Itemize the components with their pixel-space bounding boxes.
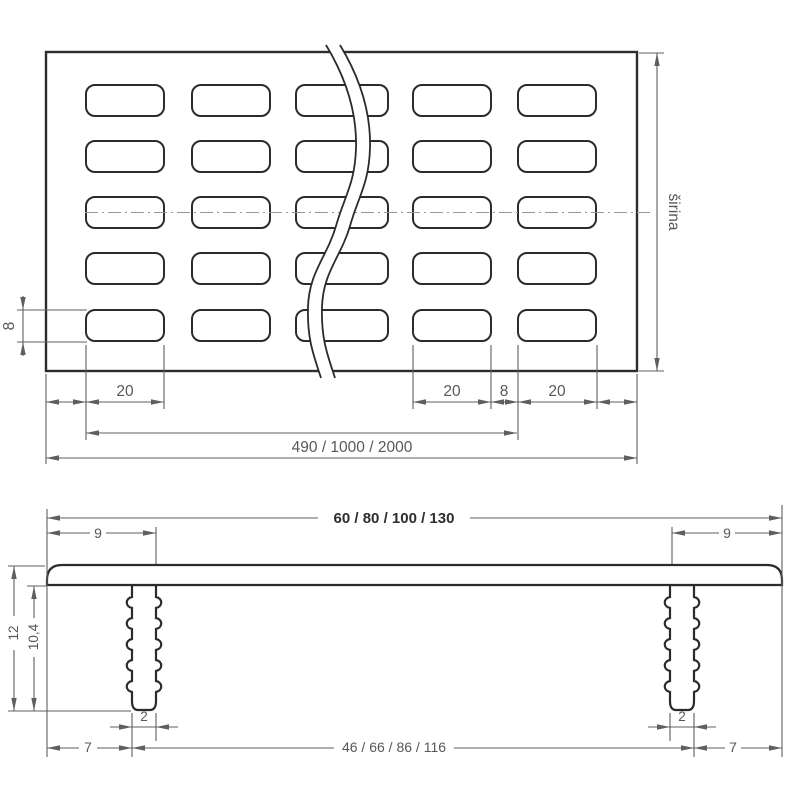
arrowhead bbox=[769, 530, 782, 535]
arrowhead bbox=[504, 430, 517, 435]
arrowhead bbox=[31, 698, 36, 711]
arrowhead bbox=[505, 399, 518, 404]
dim-hole-width-1: 20 bbox=[116, 383, 134, 400]
arrowhead bbox=[694, 724, 707, 729]
profile-legs bbox=[127, 585, 700, 710]
slot bbox=[192, 253, 270, 284]
profile-leg bbox=[127, 585, 162, 710]
arrowhead bbox=[681, 745, 694, 750]
dim-hole-width-2: 20 bbox=[443, 383, 461, 400]
arrowhead bbox=[86, 399, 99, 404]
top-view: 8 širina 20 20 8 20 490 / 1000 / 2000 bbox=[1, 45, 682, 456]
dim-width-options: 60 / 80 / 100 / 130 bbox=[334, 510, 455, 527]
technical-drawing: 8 širina 20 20 8 20 490 / 1000 / 2000 60… bbox=[0, 0, 800, 800]
arrowhead bbox=[11, 698, 16, 711]
arrowhead bbox=[478, 399, 491, 404]
dim-width-label: širina bbox=[665, 193, 682, 230]
dim-leg-width-left: 2 bbox=[140, 709, 148, 724]
slot bbox=[192, 141, 270, 172]
section-dimensions: 60 / 80 / 100 / 130 9 9 12 10,4 2 2 7 7 … bbox=[6, 510, 737, 755]
slot bbox=[518, 141, 596, 172]
slot bbox=[518, 310, 596, 341]
slot bbox=[86, 253, 164, 284]
dim-leg-span-options: 46 / 66 / 86 / 116 bbox=[342, 739, 446, 755]
slot bbox=[413, 310, 491, 341]
arrowhead bbox=[151, 399, 164, 404]
arrowhead bbox=[413, 399, 426, 404]
slot bbox=[86, 85, 164, 116]
slot bbox=[296, 85, 388, 116]
slot bbox=[413, 85, 491, 116]
arrowhead bbox=[119, 724, 132, 729]
profile-leg bbox=[665, 585, 700, 710]
arrowhead bbox=[20, 297, 25, 310]
arrowhead bbox=[119, 745, 132, 750]
arrowhead bbox=[769, 745, 782, 750]
arrowhead bbox=[654, 358, 659, 371]
arrowhead bbox=[132, 745, 145, 750]
dim-total-height: 12 bbox=[6, 625, 21, 640]
arrowhead bbox=[654, 53, 659, 66]
arrowhead bbox=[624, 399, 637, 404]
arrowhead bbox=[47, 745, 60, 750]
arrowhead bbox=[584, 399, 597, 404]
slot bbox=[413, 141, 491, 172]
arrowhead bbox=[46, 399, 59, 404]
dim-leg-inset-left: 7 bbox=[84, 739, 92, 755]
arrowhead bbox=[73, 399, 86, 404]
arrowhead bbox=[672, 530, 685, 535]
profile-body bbox=[47, 565, 782, 585]
dim-hole-gap: 8 bbox=[500, 383, 509, 400]
section-view: 60 / 80 / 100 / 130 9 9 12 10,4 2 2 7 7 … bbox=[6, 510, 782, 755]
arrowhead bbox=[624, 455, 637, 460]
arrowhead bbox=[31, 586, 36, 599]
arrowhead bbox=[491, 399, 504, 404]
arrowhead bbox=[657, 724, 670, 729]
arrowhead bbox=[769, 515, 782, 520]
arrowhead bbox=[47, 530, 60, 535]
arrowhead bbox=[143, 530, 156, 535]
arrowhead bbox=[11, 566, 16, 579]
slot bbox=[192, 85, 270, 116]
dim-hole-width-3: 20 bbox=[548, 383, 566, 400]
arrowhead bbox=[694, 745, 707, 750]
slot bbox=[413, 253, 491, 284]
dim-length-options: 490 / 1000 / 2000 bbox=[292, 439, 413, 456]
dim-edge-offset-right: 9 bbox=[723, 525, 731, 541]
dim-edge-offset-left: 9 bbox=[94, 525, 102, 541]
arrowhead bbox=[597, 399, 610, 404]
dim-leg-height: 10,4 bbox=[26, 623, 41, 650]
dim-hole-height: 8 bbox=[1, 322, 18, 331]
arrowhead bbox=[46, 455, 59, 460]
arrowhead bbox=[86, 430, 99, 435]
arrowhead bbox=[156, 724, 169, 729]
slot bbox=[518, 253, 596, 284]
dim-leg-inset-right: 7 bbox=[729, 739, 737, 755]
arrowhead bbox=[20, 342, 25, 355]
arrowhead bbox=[47, 515, 60, 520]
arrowhead bbox=[518, 399, 531, 404]
slot bbox=[86, 310, 164, 341]
slot bbox=[86, 141, 164, 172]
dim-leg-width-right: 2 bbox=[678, 709, 686, 724]
slot bbox=[296, 253, 388, 284]
slot bbox=[296, 141, 388, 172]
slot bbox=[518, 85, 596, 116]
slot bbox=[192, 310, 270, 341]
